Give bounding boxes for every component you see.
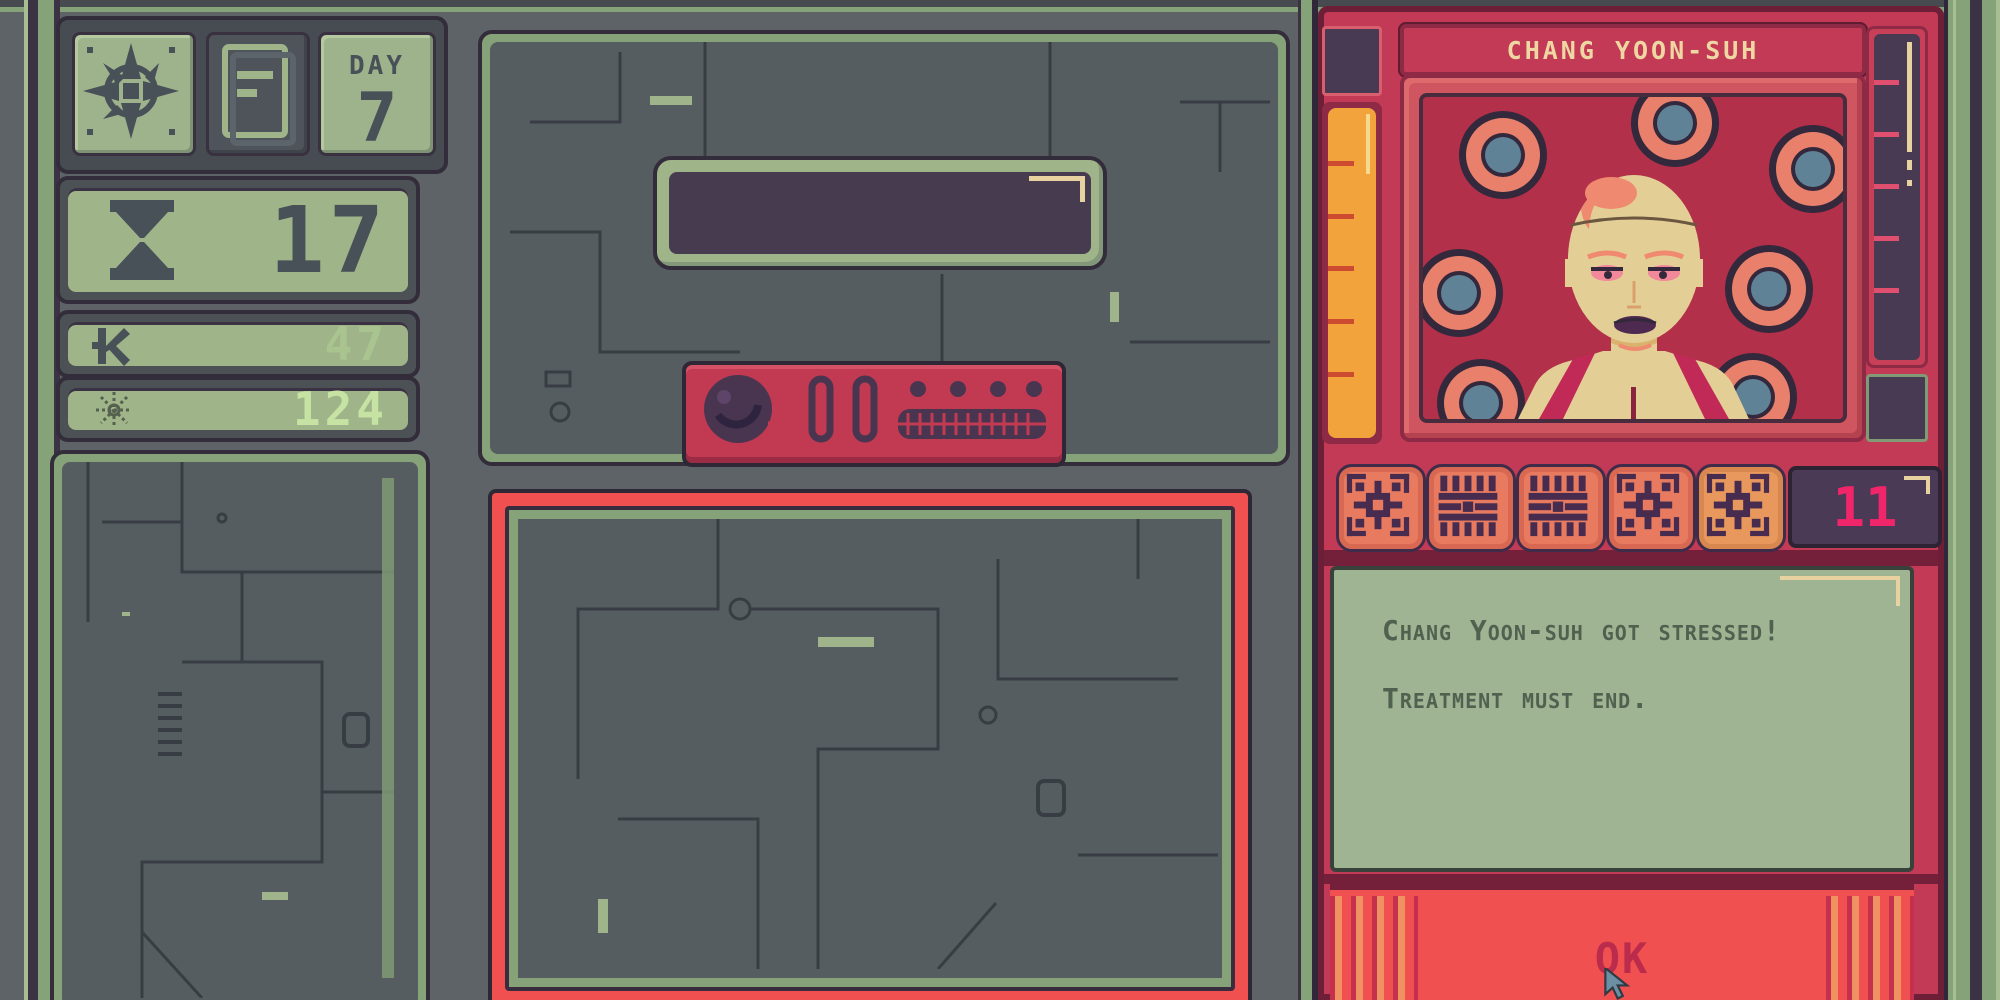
kip-currency-icon: [90, 324, 134, 368]
time-remaining-panel: 17: [56, 176, 420, 304]
panel-separator: [1324, 874, 1938, 884]
time-remaining-value: 17: [269, 188, 388, 292]
seal-grid-icon: [1699, 467, 1777, 543]
compass-icon: [75, 35, 187, 147]
seal-counter-value: 11: [1832, 476, 1897, 539]
gauge-highlight: [1366, 114, 1370, 174]
document-icon: [209, 35, 301, 147]
treatment-bay-panel: [488, 489, 1252, 1000]
control-panel-widgets: [686, 365, 1054, 455]
patient-name: CHANG YOON-SUH: [1507, 36, 1760, 65]
seal-grid-icon: [1609, 467, 1687, 543]
gauge-highlight: [1907, 42, 1912, 152]
sun-burst-icon: [94, 390, 134, 430]
slot-highlight: [1029, 176, 1085, 181]
game-screen: DAY 7 17: [0, 0, 2000, 1000]
gauge-socket: [1322, 26, 1382, 96]
treatment-bay-purple-ring: [505, 506, 1235, 991]
knob-icon[interactable]: [704, 375, 780, 443]
treatment-bay-green-ring: [509, 510, 1231, 987]
treatment-gauge-well: [1874, 34, 1920, 360]
stress-gauge: [1322, 102, 1382, 444]
time-panel-face: 17: [68, 188, 408, 292]
hourglass-icon: [98, 196, 186, 284]
left-machine-face: [62, 462, 418, 1000]
event-message-box: Chang Yoon-suh got stressed! Treatment m…: [1330, 566, 1914, 872]
day-value: 7: [321, 79, 433, 158]
money-value: 47: [325, 322, 388, 366]
cursor-pointer-icon: [1602, 968, 1632, 1000]
money-panel: 47: [56, 310, 420, 378]
circuit-texture: [62, 462, 410, 998]
treatment-seal-button-3[interactable]: [1516, 464, 1606, 552]
message-line-1: Chang Yoon-suh got stressed!: [1382, 614, 1882, 647]
slot-highlight: [1080, 176, 1085, 202]
treatment-bay-face: [518, 519, 1222, 978]
left-machine-panel: [50, 450, 430, 1000]
seal-counter: 11: [1788, 466, 1942, 548]
seal-comb-icon: [1519, 467, 1597, 543]
treatment-seal-button-4[interactable]: [1606, 464, 1696, 552]
mid-frame-conduit: [1298, 0, 1318, 1000]
sun-resource-panel: 124: [56, 376, 420, 442]
seal-comb-icon: [1429, 467, 1507, 543]
patient-portrait-art: [1423, 97, 1843, 419]
stress-gauge-fill: [1328, 108, 1376, 438]
treatment-gauge: [1866, 26, 1928, 368]
money-panel-face: 47: [68, 322, 408, 366]
patient-list-button[interactable]: [206, 32, 310, 156]
ticket-slot-screen: [669, 172, 1091, 254]
sun-resource-value: 124: [293, 388, 388, 430]
treatment-seal-button-5[interactable]: [1696, 464, 1786, 552]
patient-portrait: [1419, 93, 1847, 423]
hud-button-cluster: DAY 7: [56, 16, 448, 174]
treatment-seal-button-2[interactable]: [1426, 464, 1516, 552]
gauge-socket: [1866, 374, 1928, 442]
slot-switches: [812, 379, 874, 439]
day-display: DAY 7: [318, 32, 436, 156]
map-compass-button[interactable]: [72, 32, 196, 156]
machine-control-panel: [682, 361, 1066, 467]
indicator-dots: [910, 381, 1042, 397]
circuit-texture: [518, 519, 1218, 969]
message-line-2: Treatment must end.: [1382, 682, 1882, 715]
patient-portrait-frame: [1400, 74, 1866, 442]
seal-grid-icon: [1339, 467, 1417, 543]
panel-separator: [1324, 550, 1938, 566]
patient-name-header: CHANG YOON-SUH: [1400, 24, 1866, 76]
vent-grille: [898, 409, 1046, 439]
treatment-seal-button-1[interactable]: [1336, 464, 1426, 552]
day-label: DAY: [321, 51, 433, 81]
ticket-slot: [653, 156, 1107, 270]
right-frame-conduit: [1944, 0, 2000, 1000]
sun-panel-face: 124: [68, 388, 408, 430]
